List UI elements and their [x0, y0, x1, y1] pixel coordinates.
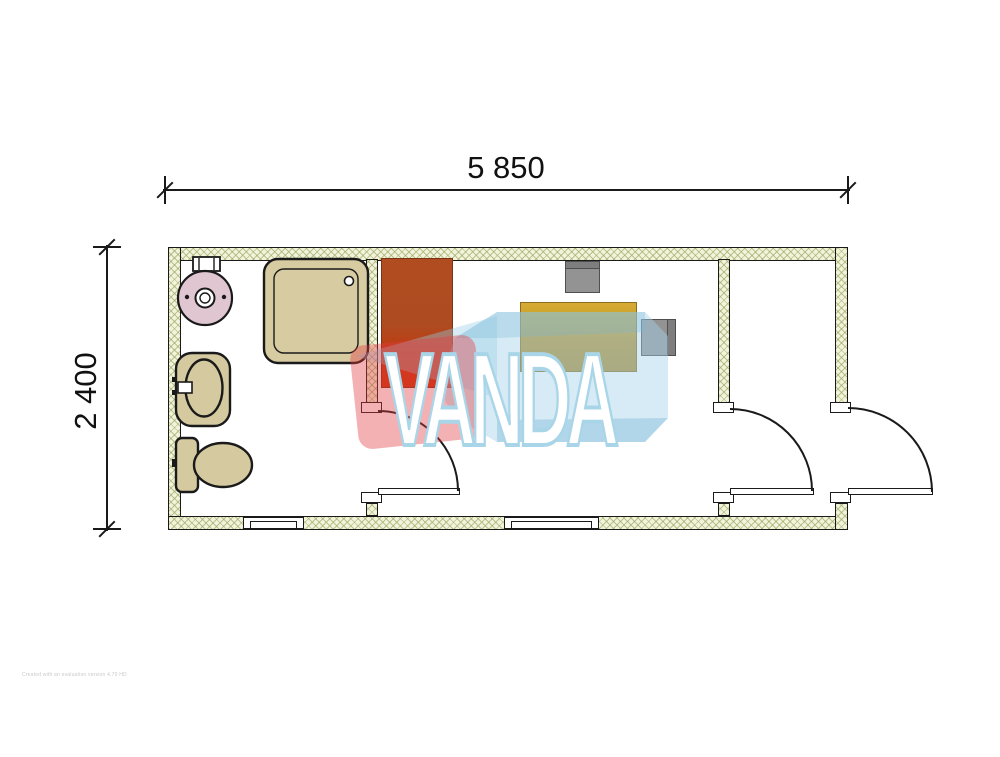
door3-jamb-top — [830, 402, 851, 413]
toilet-icon — [172, 438, 252, 492]
fine-print: Created with an evaluation version 4.70 … — [22, 672, 127, 678]
width-dimension-line — [163, 189, 850, 191]
wall-bottom-segment-3 — [598, 516, 848, 530]
door1-jamb-top — [361, 402, 382, 413]
partition-hall-stub — [718, 503, 730, 516]
washing-machine-icon — [178, 257, 232, 325]
chair-backrest — [566, 262, 599, 269]
window-pane — [250, 521, 297, 529]
wall-left — [168, 247, 181, 530]
floor-plan-canvas: 5 850 2 400 — [0, 0, 1000, 757]
width-dimension-label: 5 850 — [400, 150, 612, 186]
height-dimension-label: 2 400 — [68, 285, 104, 497]
door2-leaf — [730, 488, 814, 495]
wall-right-upper — [835, 247, 848, 403]
partition-bathroom-stub — [366, 503, 378, 516]
office-chair-1 — [565, 261, 600, 293]
partition-bathroom-upper — [366, 259, 378, 403]
wall-right-lower-stub — [835, 503, 848, 530]
height-dimension-line — [106, 245, 108, 531]
partition-hall-upper — [718, 259, 730, 403]
wall-bottom-segment-2 — [303, 516, 505, 530]
window-bathroom — [244, 516, 303, 530]
door2-jamb-top — [713, 402, 734, 413]
door3-swing-arc — [848, 408, 932, 492]
wall-bottom-segment-1 — [168, 516, 244, 530]
wall-top — [168, 247, 848, 261]
window-office — [505, 516, 598, 530]
shower-tray-icon — [264, 259, 368, 363]
door3-leaf — [848, 488, 933, 495]
door2-swing-arc — [730, 409, 812, 491]
chair-backrest — [667, 320, 675, 355]
door1-leaf — [378, 488, 460, 495]
window-pane — [511, 521, 592, 529]
office-chair-2 — [641, 319, 676, 356]
watermark-text: VANDA — [384, 340, 614, 458]
